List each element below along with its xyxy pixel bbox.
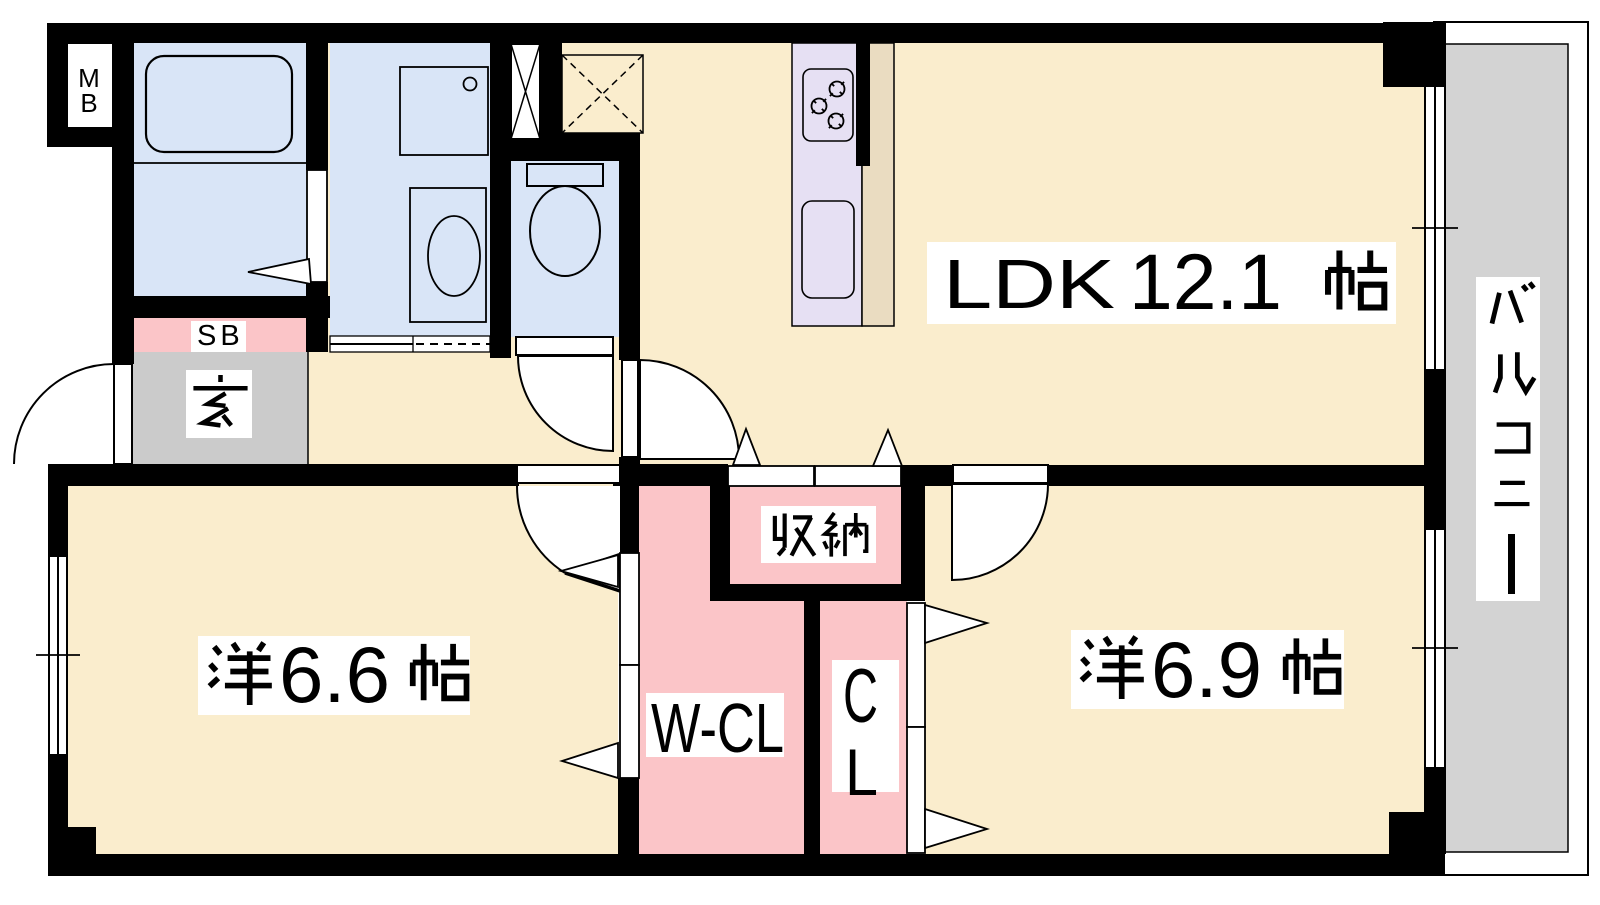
svg-text:12.1: 12.1	[1129, 237, 1282, 326]
svg-text:W-CL: W-CL	[651, 689, 784, 767]
svg-text:6.6: 6.6	[279, 630, 390, 719]
svg-text:C: C	[843, 654, 878, 739]
svg-text:LDK: LDK	[943, 245, 1115, 323]
svg-text:B: B	[80, 88, 97, 118]
svg-text:6.9: 6.9	[1151, 625, 1262, 714]
svg-text:SB: SB	[197, 320, 244, 352]
svg-text:L: L	[845, 735, 878, 809]
